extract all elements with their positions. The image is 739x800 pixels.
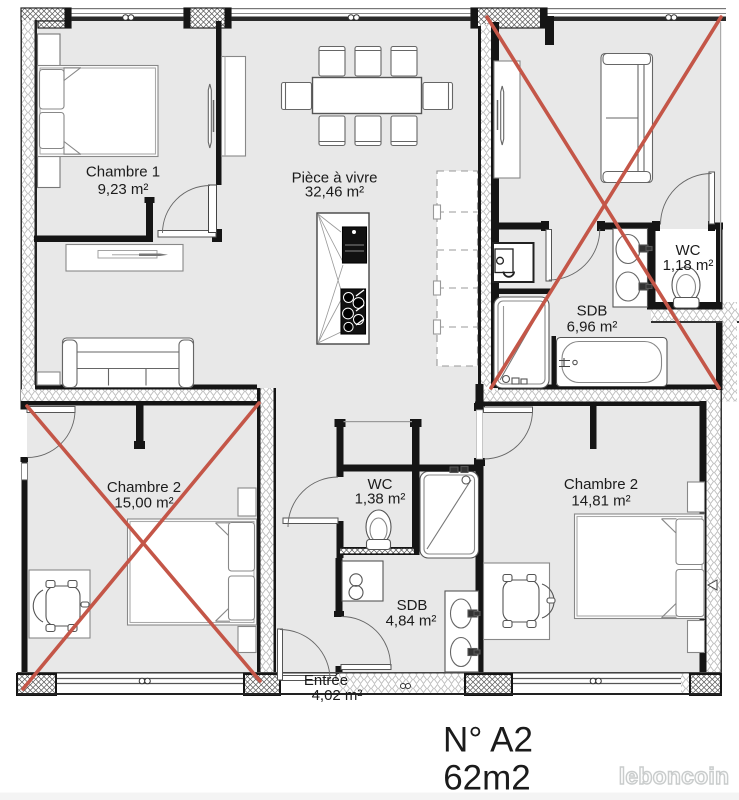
svg-text:4,84 m²: 4,84 m² (386, 613, 437, 630)
svg-text:N° A2: N° A2 (443, 721, 533, 760)
svg-text:4,02 m²: 4,02 m² (312, 687, 363, 704)
svg-text:1,18 m²: 1,18 m² (663, 257, 714, 274)
svg-text:Chambre 2: Chambre 2 (564, 476, 638, 493)
svg-text:14,81 m²: 14,81 m² (571, 493, 630, 510)
svg-text:32,46 m²: 32,46 m² (305, 184, 364, 201)
svg-text:Chambre 2: Chambre 2 (107, 479, 181, 496)
svg-text:6,96 m²: 6,96 m² (567, 319, 618, 336)
svg-text:15,00 m²: 15,00 m² (114, 495, 173, 512)
svg-text:1,38 m²: 1,38 m² (355, 491, 406, 508)
svg-text:9,23 m²: 9,23 m² (98, 181, 149, 198)
svg-text:SDB: SDB (577, 303, 608, 320)
svg-text:SDB: SDB (397, 597, 428, 614)
svg-text:Chambre 1: Chambre 1 (86, 164, 160, 181)
svg-text:leboncoin: leboncoin (619, 763, 729, 789)
svg-text:62m2: 62m2 (443, 759, 531, 798)
